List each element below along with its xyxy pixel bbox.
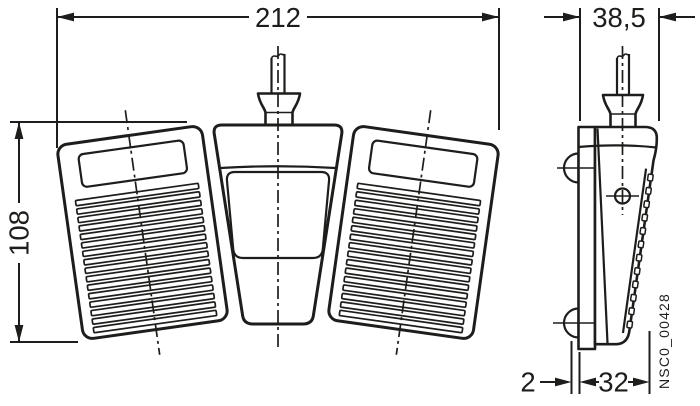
serration-tooth bbox=[629, 308, 635, 315]
doc-number-label: NSC0_00428 bbox=[656, 293, 672, 389]
drawing-canvas: 212 38,5 108 bbox=[0, 0, 700, 406]
serration-tooth bbox=[647, 174, 653, 181]
dim-side-width-label: 38,5 bbox=[592, 2, 646, 33]
right-pedal bbox=[324, 100, 503, 365]
dim-base-gap: 2 bbox=[520, 341, 579, 398]
serration-tooth bbox=[636, 254, 642, 261]
serration-tooth bbox=[631, 294, 637, 301]
actuating-lever-front bbox=[258, 54, 300, 126]
front-view bbox=[53, 46, 503, 365]
serration-tooth bbox=[627, 321, 633, 328]
arrow-height-bottom bbox=[15, 325, 24, 342]
middle-pedal bbox=[214, 46, 342, 350]
arrow-gap bbox=[555, 378, 572, 387]
dim-base-gap-label: 2 bbox=[520, 367, 535, 398]
arrow-width-left bbox=[57, 13, 74, 22]
lever-boot-front bbox=[258, 94, 300, 127]
arrow-height-top bbox=[15, 122, 24, 139]
arrow-width-right bbox=[482, 13, 499, 22]
technical-drawing: 212 38,5 108 bbox=[0, 0, 700, 406]
serration-tooth bbox=[644, 201, 650, 208]
serration-tooth bbox=[632, 281, 638, 288]
left-pedal bbox=[53, 100, 232, 365]
arrow-base-left bbox=[580, 378, 597, 387]
side-view bbox=[553, 46, 657, 349]
arrow-base-right bbox=[633, 378, 650, 387]
dim-overall-width-label: 212 bbox=[255, 2, 301, 33]
serration-tooth bbox=[634, 268, 640, 275]
serration-tooth bbox=[638, 241, 644, 248]
serration-tooth bbox=[642, 214, 648, 221]
dim-overall-height-label: 108 bbox=[4, 210, 35, 256]
arrow-depth-left bbox=[563, 13, 580, 22]
arrow-depth-right bbox=[659, 13, 676, 22]
side-back-plate bbox=[579, 127, 596, 349]
serration-tooth bbox=[646, 187, 652, 194]
serration-tooth bbox=[640, 227, 646, 234]
dim-base-depth-label: 32 bbox=[598, 367, 629, 398]
